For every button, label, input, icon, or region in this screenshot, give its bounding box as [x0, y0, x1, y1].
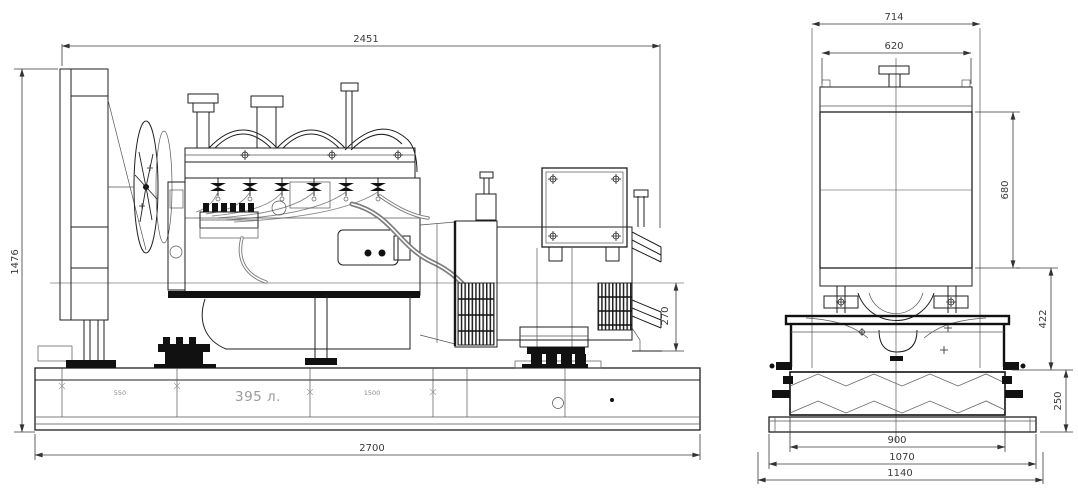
- dim-label-plate-width: 1070: [889, 452, 914, 463]
- dim-label-axis-height: 270: [660, 306, 671, 325]
- dim-label-overall-base-width: 1140: [887, 468, 912, 479]
- dim-label-tank-height: 250: [1053, 391, 1064, 410]
- base-label-left-segment: 550: [114, 389, 126, 397]
- base-label-right-segment: 1500: [364, 389, 381, 397]
- dim-label-radiator-width: 620: [884, 41, 903, 52]
- alternator-grille-rear: [598, 283, 632, 330]
- base-plug: [610, 398, 614, 402]
- drain-plug: [890, 356, 903, 361]
- dim-label-radiator-height: 680: [1000, 180, 1011, 199]
- drawing-canvas: 2451 1476 270 2700: [0, 0, 1078, 488]
- dim-label-overall-width: 714: [884, 12, 903, 23]
- fuel-tank-capacity-label: 395 л.: [235, 389, 281, 405]
- dim-label-overall-length: 2451: [353, 34, 378, 45]
- generator-dimensional-drawing: 2451 1476 270 2700: [0, 0, 1078, 488]
- dim-label-tank-width: 900: [887, 435, 906, 446]
- dim-label-core-to-skid: 422: [1038, 309, 1049, 328]
- alternator-grille-front: [458, 283, 494, 345]
- dim-label-overall-height: 1476: [10, 249, 21, 274]
- dim-label-base-length: 2700: [359, 443, 384, 454]
